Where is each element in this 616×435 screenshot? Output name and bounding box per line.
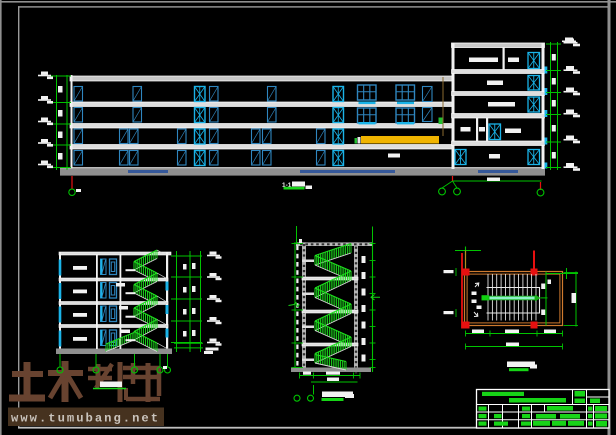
svg-text:www.tumubang.net: www.tumubang.net xyxy=(11,412,160,426)
